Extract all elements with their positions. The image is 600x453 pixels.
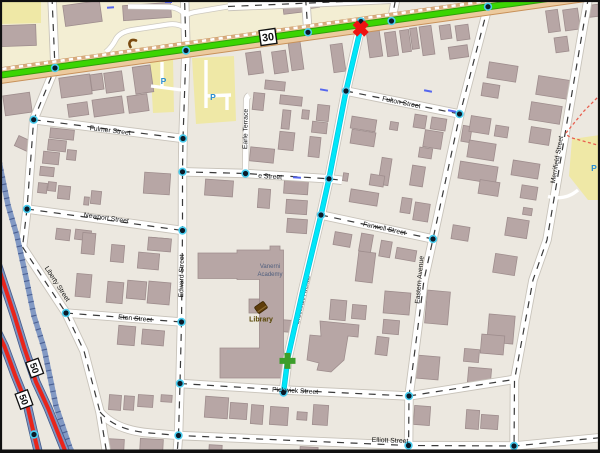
svg-text:P: P — [161, 76, 167, 86]
svg-text:Earle Terrace: Earle Terrace — [242, 109, 250, 150]
svg-text:Elliott Street: Elliott Street — [372, 437, 409, 445]
svg-text:P: P — [591, 163, 597, 173]
svg-text:Academy: Academy — [257, 272, 282, 278]
svg-text:Vanerni: Vanerni — [260, 264, 280, 270]
svg-text:Library: Library — [249, 317, 273, 324]
svg-text:30: 30 — [261, 31, 275, 45]
svg-text:P: P — [210, 92, 216, 102]
svg-text:Edward Street: Edward Street — [178, 254, 186, 297]
